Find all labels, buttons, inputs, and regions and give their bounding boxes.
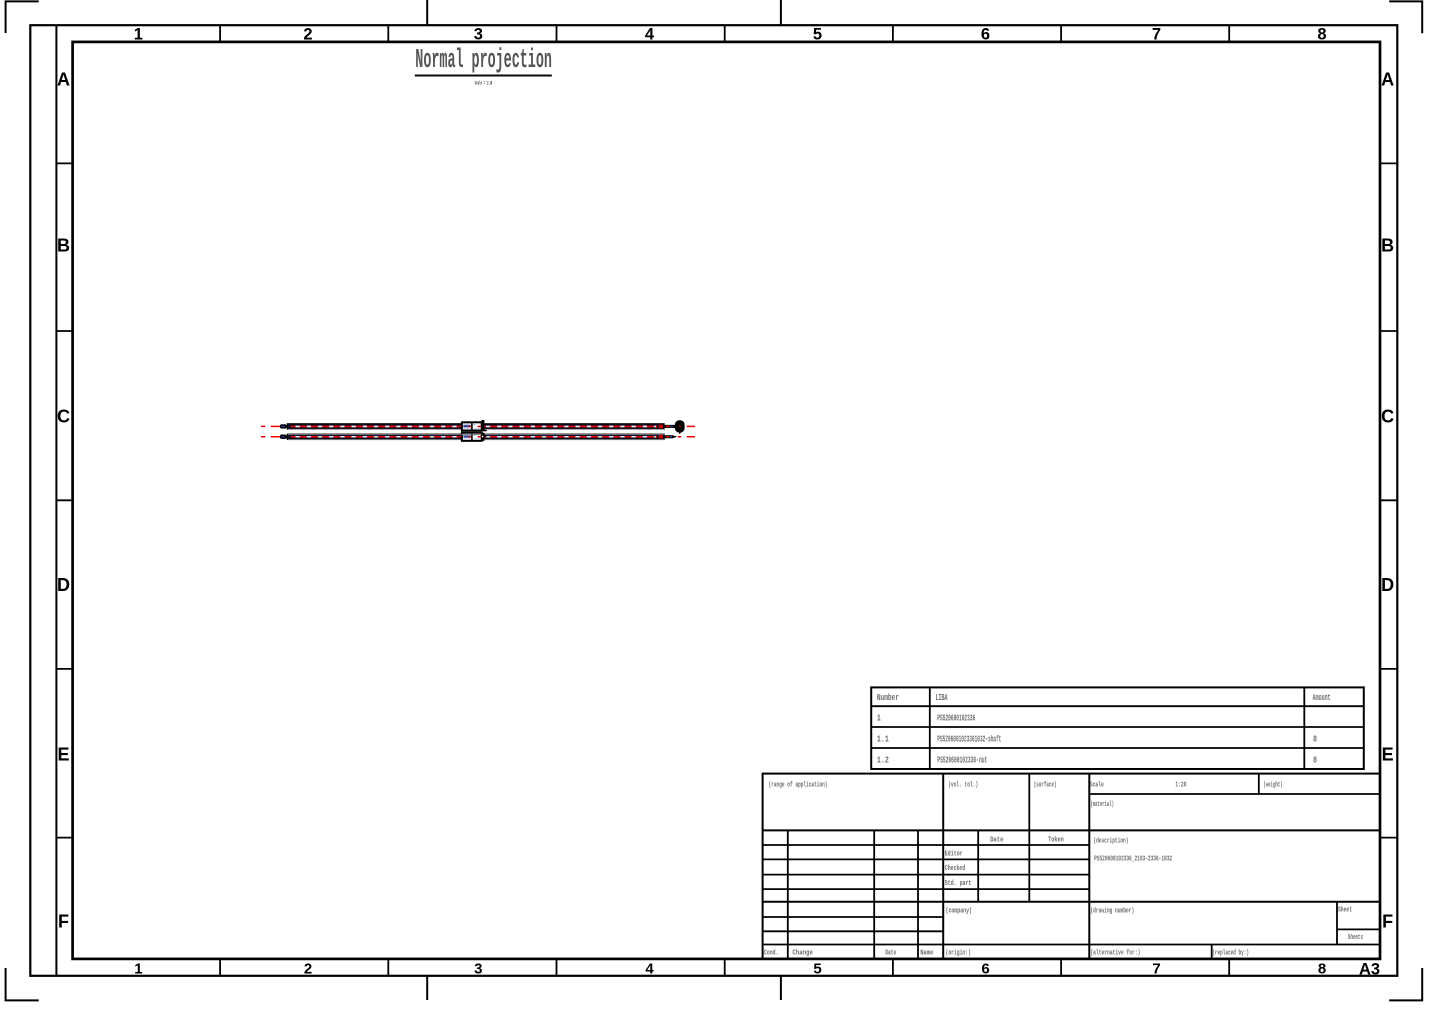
svg-text:Sheets: Sheets	[1348, 934, 1363, 942]
svg-text:2: 2	[303, 25, 312, 43]
svg-text:7: 7	[1152, 961, 1160, 978]
svg-text:D: D	[57, 575, 70, 595]
svg-text:PS520600102336_2103-2336-1032: PS520600102336_2103-2336-1032	[1094, 856, 1172, 864]
svg-text:1: 1	[134, 25, 143, 43]
svg-text:1.2: 1.2	[877, 755, 889, 765]
svg-text:(material): (material)	[1090, 801, 1114, 809]
svg-text:Date: Date	[990, 837, 1004, 845]
svg-text:D: D	[1381, 575, 1394, 595]
svg-text:8: 8	[1318, 961, 1326, 978]
svg-text:(alternative for:): (alternative for:)	[1090, 950, 1140, 958]
svg-text:(weight): (weight)	[1263, 781, 1283, 789]
svg-text:5: 5	[813, 961, 821, 978]
svg-text:B: B	[57, 236, 70, 256]
svg-text:PS520600102336-nut: PS520600102336-nut	[937, 755, 987, 765]
svg-text:Sheet: Sheet	[1338, 906, 1352, 914]
svg-text:(origin:): (origin:)	[946, 950, 971, 958]
svg-text:8: 8	[1317, 25, 1326, 43]
svg-text:(description): (description)	[1093, 838, 1128, 846]
svg-text:3: 3	[474, 25, 483, 43]
svg-text:1:20: 1:20	[1175, 781, 1186, 789]
svg-text:(vol. tol.): (vol. tol.)	[948, 781, 978, 789]
svg-text:E: E	[1382, 745, 1394, 765]
svg-text:F: F	[58, 912, 69, 932]
svg-text:8: 8	[1313, 755, 1317, 765]
svg-text:Token: Token	[1048, 837, 1064, 845]
svg-text:B: B	[1381, 236, 1394, 256]
svg-text:A: A	[57, 70, 70, 90]
svg-text:2: 2	[304, 961, 312, 978]
svg-text:C: C	[1381, 407, 1394, 427]
svg-text:PS520600102336: PS520600102336	[937, 713, 975, 723]
svg-text:Date: Date	[885, 950, 896, 958]
svg-text:Scale: Scale	[1090, 781, 1104, 789]
svg-text:1: 1	[877, 713, 881, 723]
svg-text:A3: A3	[1359, 960, 1380, 978]
svg-text:PS5206001023361032-shaft: PS5206001023361032-shaft	[937, 734, 1001, 744]
svg-text:(replaced by:): (replaced by:)	[1212, 950, 1249, 958]
svg-text:1: 1	[134, 961, 142, 978]
svg-text:Normal projection: Normal projection	[415, 45, 552, 75]
svg-text:Std. part: Std. part	[945, 880, 972, 888]
svg-text:F: F	[1382, 912, 1393, 932]
svg-text:E: E	[57, 745, 69, 765]
svg-text:6: 6	[981, 25, 990, 43]
svg-text:8: 8	[1313, 734, 1317, 744]
svg-text:4: 4	[645, 961, 654, 978]
svg-text:3: 3	[474, 961, 482, 978]
svg-text:1.1: 1.1	[877, 734, 889, 744]
svg-text:4: 4	[645, 25, 655, 43]
svg-text:Scale = 1:10: Scale = 1:10	[475, 80, 493, 86]
svg-text:5: 5	[813, 25, 822, 43]
svg-text:(company): (company)	[946, 907, 973, 915]
svg-text:(range of application): (range of application)	[769, 781, 828, 789]
svg-text:A: A	[1381, 70, 1394, 90]
svg-text:Change: Change	[792, 950, 813, 958]
svg-text:(surface): (surface)	[1034, 781, 1057, 789]
svg-text:Amount: Amount	[1313, 693, 1331, 703]
svg-text:(drawing number): (drawing number)	[1090, 907, 1134, 915]
svg-text:Cond.: Cond.	[764, 950, 779, 958]
svg-text:Checked: Checked	[945, 865, 966, 873]
svg-text:Number: Number	[877, 693, 899, 703]
svg-text:Name: Name	[920, 950, 934, 958]
svg-text:Editor: Editor	[945, 851, 963, 859]
svg-text:C: C	[57, 407, 70, 427]
svg-text:LIBA: LIBA	[936, 693, 948, 703]
svg-text:7: 7	[1152, 25, 1161, 43]
svg-text:6: 6	[981, 961, 989, 978]
